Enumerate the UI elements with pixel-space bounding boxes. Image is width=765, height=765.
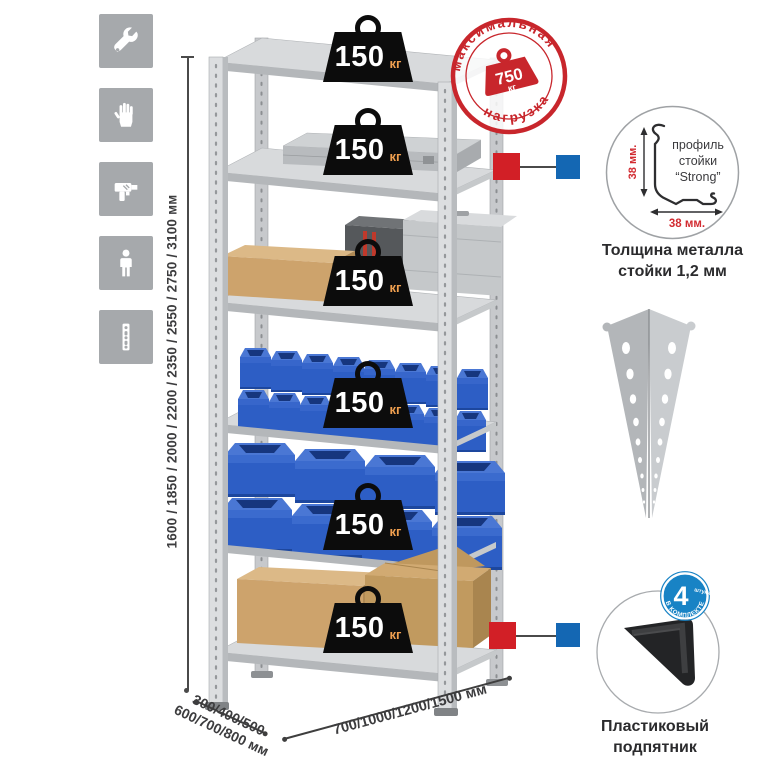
vertical-dim-label: 38 мм.	[627, 145, 639, 180]
angle-post-graphic	[592, 306, 704, 528]
gloves-icon-tile	[99, 88, 153, 142]
shelf-load-badge: 150кг	[323, 15, 413, 82]
person-icon	[110, 247, 142, 279]
silver-case	[403, 210, 517, 296]
callout-marker-blue-top	[556, 155, 580, 179]
shelf-load-badge: 150кг	[323, 239, 413, 306]
callout-line-top	[518, 166, 558, 168]
product-infographic: 1600 / 1850 / 2000 / 2200 / 2350 / 2550 …	[0, 0, 765, 765]
wrench-icon-tile	[99, 14, 153, 68]
shelf-load-badge: 150кг	[323, 586, 413, 653]
callout-line-bottom	[514, 635, 558, 637]
profile-caption-line2: стойки 1,2 мм	[585, 261, 760, 282]
badge-count: 4	[673, 581, 688, 611]
foot-caption-line1: Пластиковый	[580, 716, 730, 737]
callout-marker-red-bottom	[489, 622, 516, 649]
wrench-icon	[110, 25, 142, 57]
foot-plate	[251, 671, 273, 678]
profile-caption: Толщина металла стойки 1,2 мм	[585, 240, 760, 282]
callout-marker-blue-bottom	[556, 623, 580, 647]
callout-marker-red-top	[493, 153, 520, 180]
perforated-post-icon	[110, 321, 142, 353]
profile-label-3: “Strong”	[675, 170, 720, 184]
drill-icon	[110, 173, 142, 205]
height-dimension-label: 1600 / 1850 / 2000 / 2200 / 2350 / 2550 …	[165, 152, 180, 592]
foot-caption: Пластиковый подпятник	[580, 716, 730, 758]
shelf-load-badge: 150кг	[323, 108, 413, 175]
shelf-load-badge: 150кг	[323, 483, 413, 550]
gloves-icon	[110, 99, 142, 131]
drill-icon-tile	[99, 162, 153, 216]
max-load-stamp: максимальная нагрузка 750 кг	[443, 10, 575, 142]
profile-label-2: стойки	[679, 154, 717, 168]
shelf-load-badge: 150кг	[323, 361, 413, 428]
kit-count-badge: 4 штуки В КОМПЛЕКТЕ	[660, 571, 710, 621]
horizontal-dim-label: 38 мм.	[669, 218, 705, 230]
person-icon-tile	[99, 236, 153, 290]
height-dimension-line	[187, 57, 189, 690]
profile-label-1: профиль	[672, 138, 724, 152]
post-profile-detail: 38 мм. 38 мм. профиль стойки “Strong”	[600, 100, 745, 245]
profile-caption-line1: Толщина металла	[585, 240, 760, 261]
foot-caption-line2: подпятник	[580, 737, 730, 758]
height-dimension-tick	[181, 56, 194, 58]
perforated-post-icon-tile	[99, 310, 153, 364]
